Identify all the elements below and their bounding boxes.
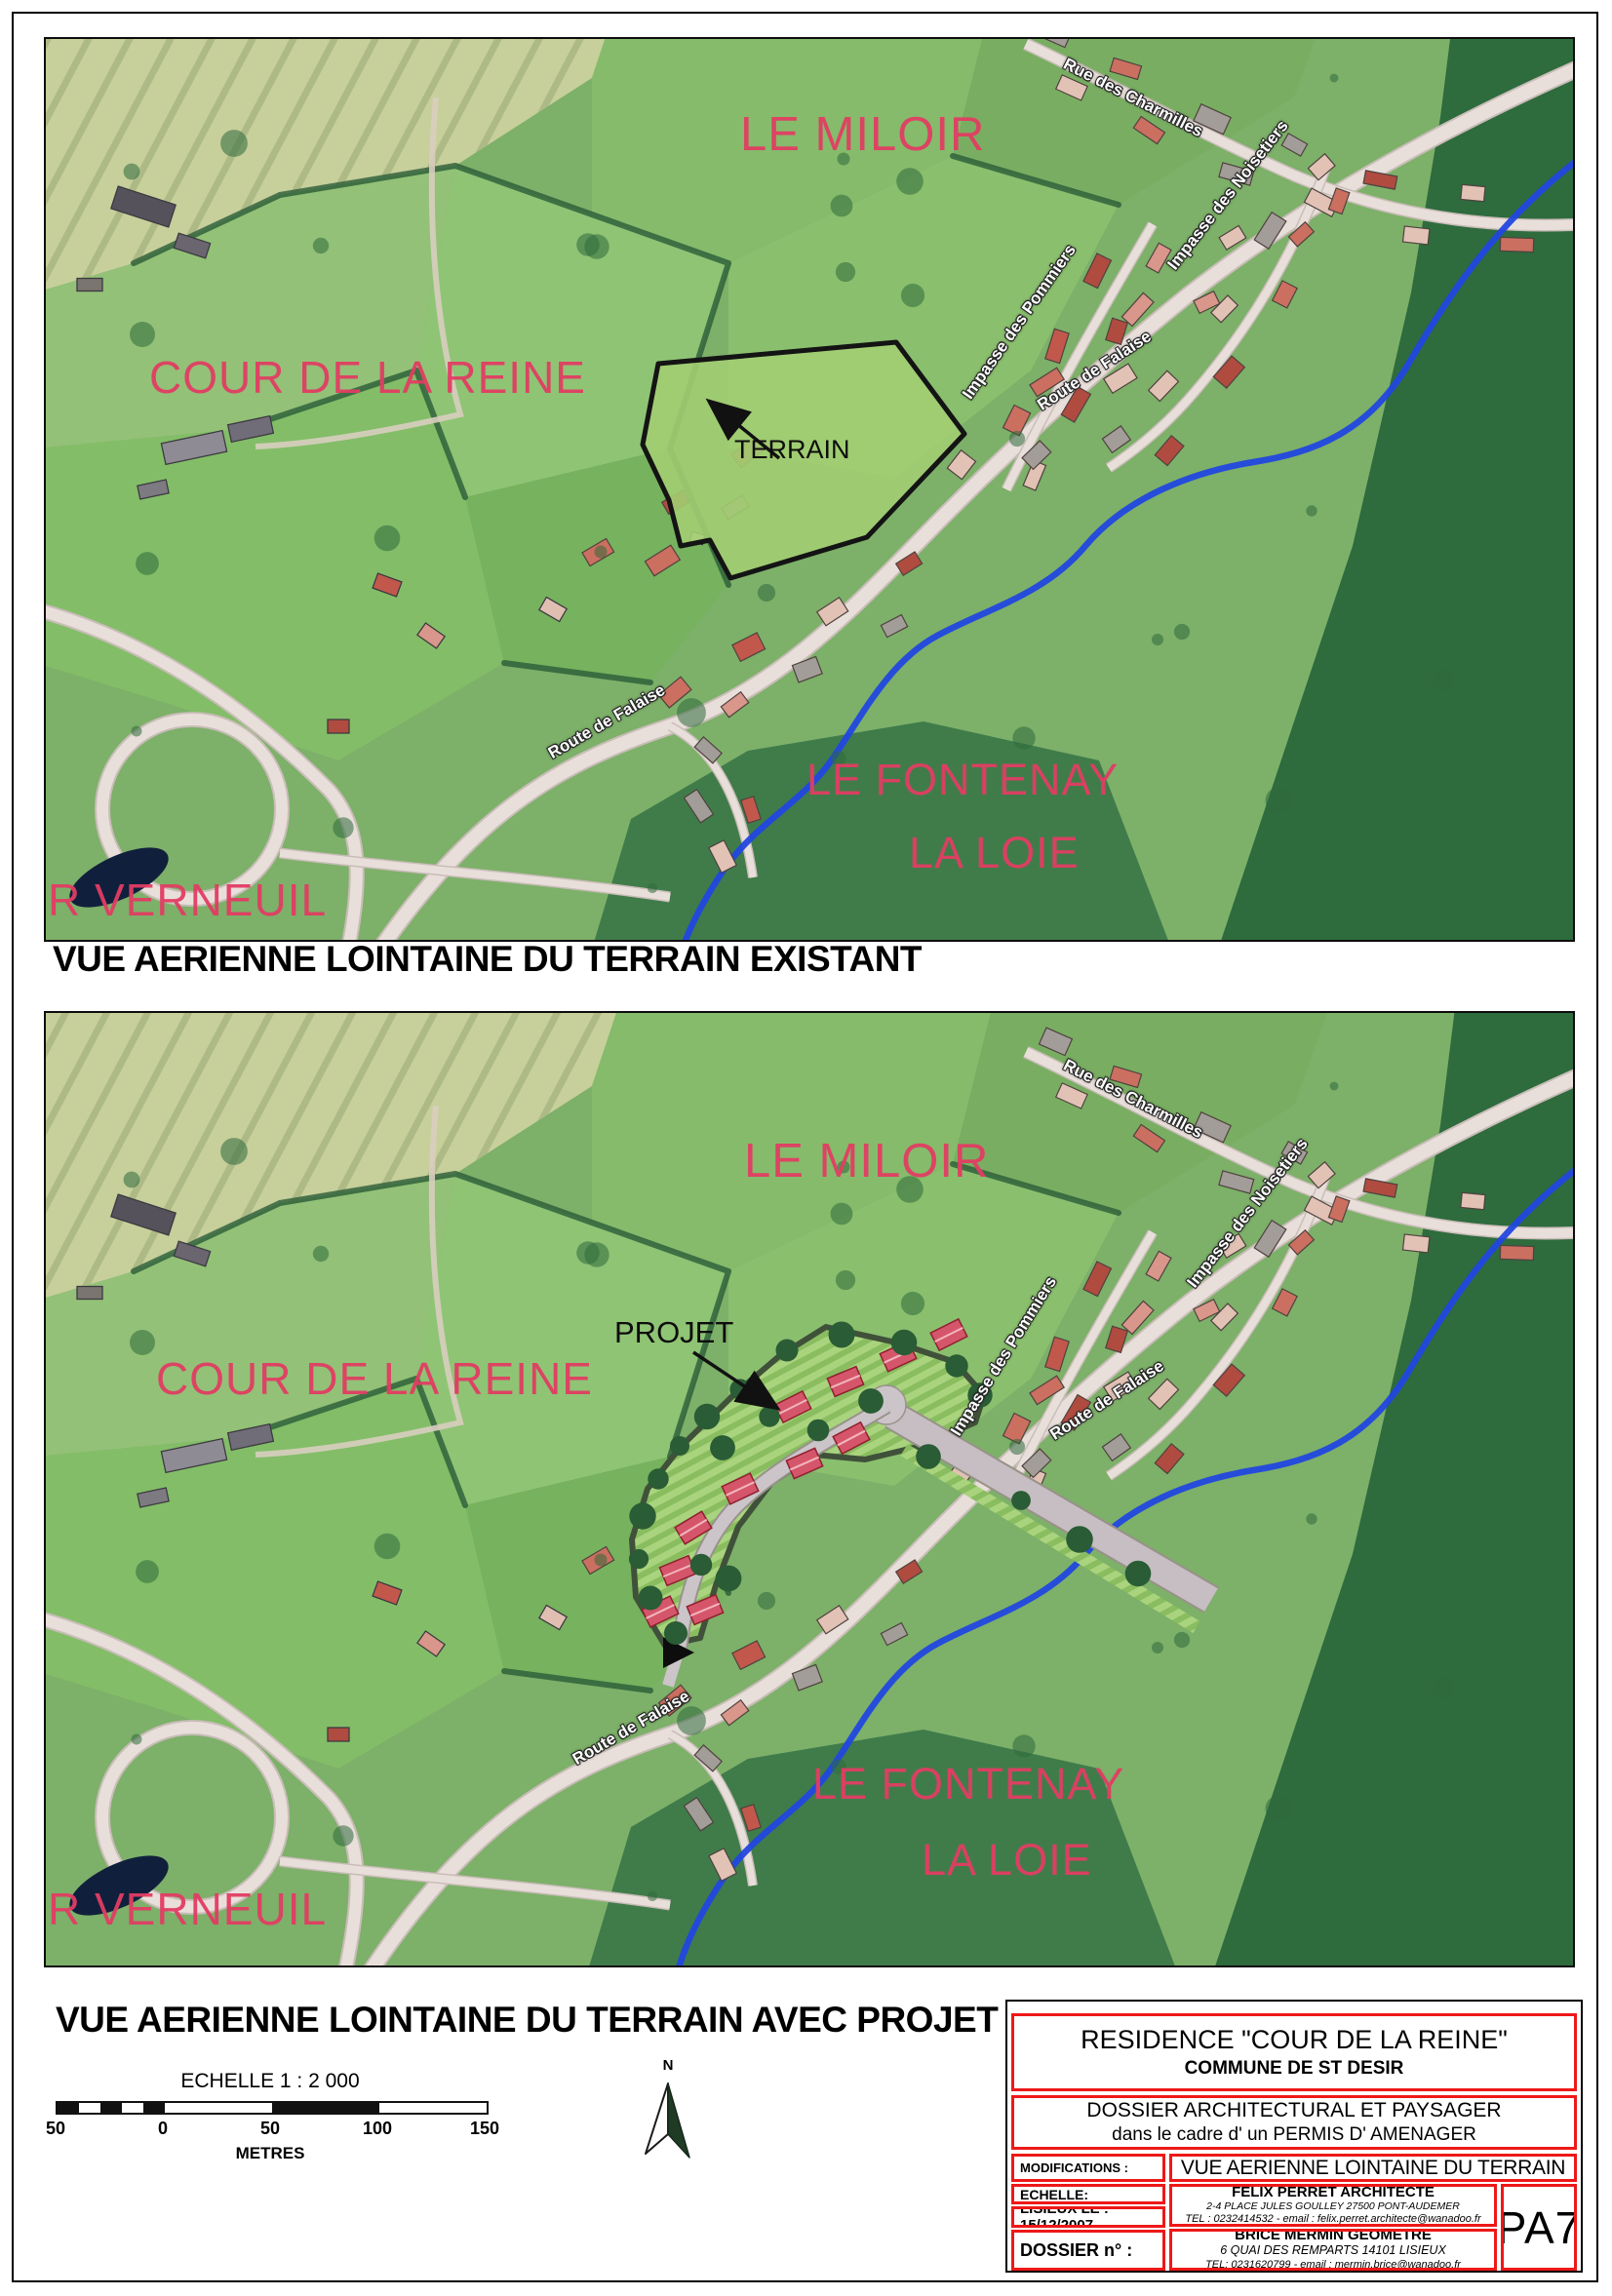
caption-project: VUE AERIENNE LOINTAINE DU TERRAIN AVEC P…	[56, 2001, 998, 2041]
modifications-label: MODIFICATIONS :	[1020, 2160, 1128, 2175]
north-label: N	[629, 2057, 707, 2074]
architect-cell: FELIX PERRET ARCHITECTE 2-4 PLACE JULES …	[1169, 2184, 1497, 2227]
place-label-la-loie: LA LOIE	[922, 1838, 1092, 1882]
dossier-num-label: DOSSIER n° :	[1020, 2240, 1132, 2261]
geometre-address: 6 QUAI DES REMPARTS 14101 LISIEUX	[1220, 2243, 1446, 2259]
sheet-number-cell: PA7	[1501, 2184, 1577, 2271]
scale-bar-graphic	[56, 2101, 489, 2115]
commune-title: COMMUNE DE ST DESIR	[1185, 2058, 1404, 2080]
scale-tick: 50	[241, 2119, 299, 2139]
architect-contact: TEL : 0232414532 - email : felix.perret.…	[1185, 2213, 1480, 2227]
place-label-r-verneuil: R VERNEUIL	[48, 1887, 327, 1931]
scale-tick: 150	[455, 2119, 514, 2139]
architect-name: FELIX PERRET ARCHITECTE	[1232, 2184, 1435, 2200]
dossier-num-cell: DOSSIER n° :	[1011, 2230, 1165, 2271]
aerial-photo-existing	[46, 39, 1573, 940]
date-label: LISIEUX LE : 15/12/2007	[1020, 2206, 1162, 2228]
architect-address: 2-4 PLACE JULES GOULLEY 27500 PONT-AUDEM…	[1206, 2200, 1460, 2213]
geometre-name: BRICE MERMIN GEOMETRE	[1235, 2229, 1432, 2243]
sheet-number: PA7	[1501, 2201, 1577, 2254]
geometre-cell: BRICE MERMIN GEOMETRE 6 QUAI DES REMPART…	[1169, 2229, 1497, 2271]
title-block: RESIDENCE "COUR DE LA REINE" COMMUNE DE …	[1005, 2000, 1583, 2273]
title-block-dossier-type: DOSSIER ARCHITECTURAL ET PAYSAGER dans l…	[1011, 2095, 1577, 2150]
terrain-label: TERRAIN	[734, 437, 850, 463]
scale-tick: 0	[134, 2119, 192, 2139]
place-label-le-miloir: LE MILOIR	[740, 111, 985, 159]
residence-title: RESIDENCE "COUR DE LA REINE"	[1081, 2025, 1508, 2055]
modifications-cell: MODIFICATIONS :	[1011, 2154, 1165, 2182]
scale-tick: 100	[348, 2119, 407, 2139]
north-arrow-icon	[639, 2078, 697, 2161]
projet-label: PROJET	[614, 1317, 733, 1347]
dossier-line2: dans le cadre d' un PERMIS D' AMENAGER	[1112, 2124, 1476, 2146]
place-label-cour-de-la-reine: COUR DE LA REINE	[149, 355, 586, 400]
scale-unit: METRES	[56, 2144, 485, 2163]
sheet-title: VUE AERIENNE LOINTAINE DU TERRAIN	[1181, 2157, 1565, 2180]
place-label-r-verneuil: R VERNEUIL	[48, 877, 327, 922]
aerial-view-project: LE MILOIR COUR DE LA REINE PROJET LE FON…	[44, 1011, 1575, 1967]
echelle-cell: ECHELLE:	[1011, 2184, 1165, 2204]
north-arrow: N	[629, 2057, 707, 2164]
title-block-project-name: RESIDENCE "COUR DE LA REINE" COMMUNE DE …	[1011, 2013, 1577, 2091]
geometre-contact: TEL: 0231620799 - email : mermin.brice@w…	[1205, 2259, 1461, 2271]
echelle-label: ECHELLE:	[1020, 2187, 1088, 2202]
dossier-line1: DOSSIER ARCHITECTURAL ET PAYSAGER	[1086, 2099, 1501, 2122]
plan-sheet: LE MILOIR COUR DE LA REINE TERRAIN LE FO…	[0, 0, 1612, 2296]
sheet-title-cell: VUE AERIENNE LOINTAINE DU TERRAIN	[1169, 2154, 1577, 2182]
date-cell: LISIEUX LE : 15/12/2007	[1011, 2206, 1165, 2228]
scale-tick: 50	[26, 2119, 85, 2139]
place-label-le-fontenay: LE FONTENAY	[812, 1762, 1124, 1806]
place-label-cour-de-la-reine: COUR DE LA REINE	[156, 1356, 593, 1401]
aerial-view-existing: LE MILOIR COUR DE LA REINE TERRAIN LE FO…	[44, 37, 1575, 942]
place-label-la-loie: LA LOIE	[909, 831, 1080, 875]
place-label-le-miloir: LE MILOIR	[744, 1138, 989, 1186]
scale-bar: ECHELLE 1 : 2 000 50 0 50 100 150 METRES	[44, 2062, 502, 2169]
place-label-le-fontenay: LE FONTENAY	[806, 758, 1119, 801]
scale-title: ECHELLE 1 : 2 000	[56, 2070, 485, 2093]
caption-existing: VUE AERIENNE LOINTAINE DU TERRAIN EXISTA…	[53, 940, 922, 980]
